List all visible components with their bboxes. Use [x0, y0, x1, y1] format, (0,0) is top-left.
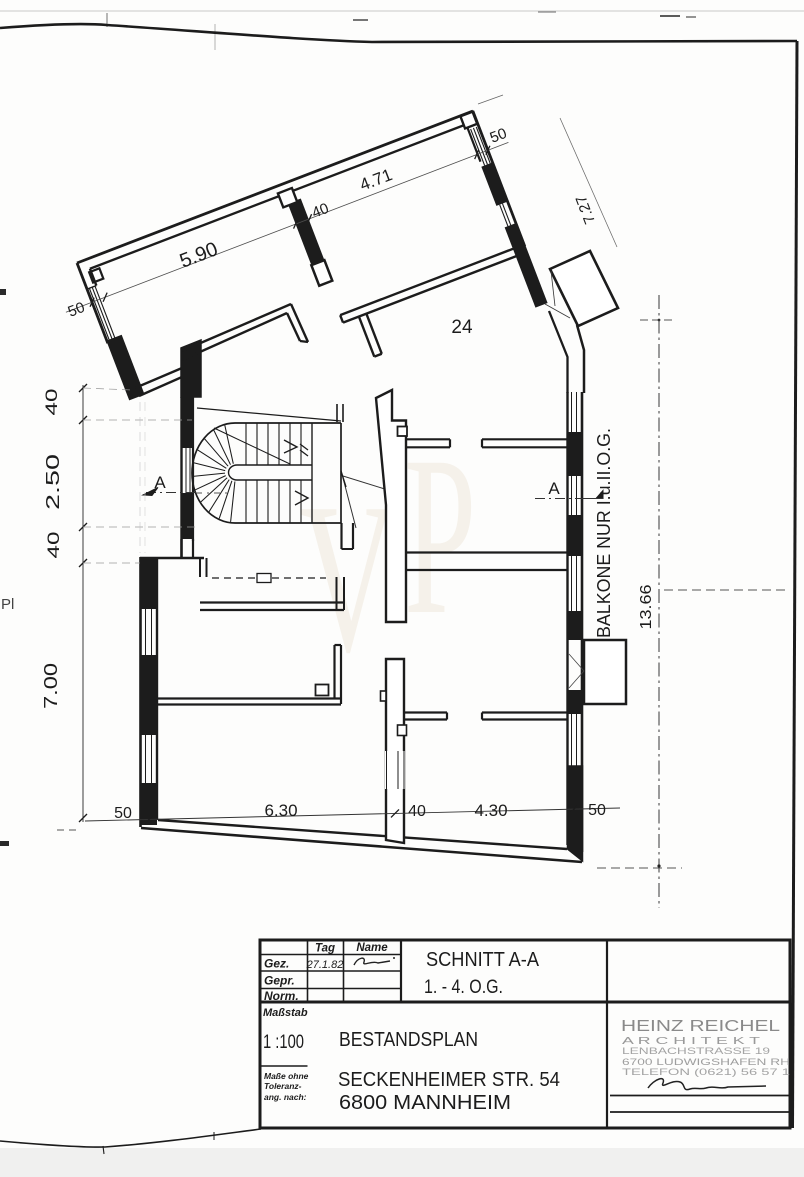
svg-text:Maßstab: Maßstab: [263, 1007, 308, 1019]
svg-text:50: 50: [588, 802, 606, 819]
svg-text:TELEFON (0621) 56 57 1: TELEFON (0621) 56 57 1: [622, 1067, 790, 1078]
svg-text:6.30: 6.30: [264, 801, 297, 820]
svg-text:1 :100: 1 :100: [263, 1032, 304, 1053]
svg-text:40: 40: [44, 532, 63, 559]
svg-text:7.00: 7.00: [41, 663, 61, 709]
svg-text:4.30: 4.30: [474, 801, 507, 820]
svg-text:Gez.: Gez.: [264, 957, 289, 971]
svg-text:6800 MANNHEIM: 6800 MANNHEIM: [339, 1092, 511, 1114]
svg-text:40: 40: [42, 389, 61, 416]
svg-text:LENBACHSTRASSE 19: LENBACHSTRASSE 19: [622, 1046, 770, 1057]
svg-text:2.50: 2.50: [43, 454, 63, 510]
svg-text:Name: Name: [356, 942, 388, 954]
svg-text:Maße ohne: Maße ohne: [264, 1071, 309, 1081]
svg-text:24: 24: [451, 317, 473, 338]
svg-text:Toleranz-: Toleranz-: [264, 1081, 302, 1091]
svg-text:1. - 4. O.G.: 1. - 4. O.G.: [424, 977, 503, 998]
svg-text:Pl: Pl: [1, 596, 14, 613]
svg-text:Gepr.: Gepr.: [264, 974, 295, 988]
svg-text:Norm.: Norm.: [264, 989, 299, 1003]
svg-text:40: 40: [408, 803, 426, 820]
svg-text:A: A: [548, 479, 560, 498]
svg-text:BESTANDSPLAN: BESTANDSPLAN: [339, 1029, 478, 1051]
svg-text:HEINZ REICHEL: HEINZ REICHEL: [621, 1018, 780, 1035]
svg-text:27.1.82: 27.1.82: [306, 959, 344, 971]
svg-text:SECKENHEIMER STR. 54: SECKENHEIMER STR. 54: [338, 1069, 560, 1091]
svg-text:SCHNITT A-A: SCHNITT A-A: [426, 949, 540, 971]
svg-text:BALKONE NUR I.u.II.O.G.: BALKONE NUR I.u.II.O.G.: [594, 428, 614, 638]
svg-text:Tag: Tag: [315, 943, 335, 955]
svg-text:13.66: 13.66: [638, 584, 655, 629]
svg-text:ang. nach:: ang. nach:: [264, 1092, 307, 1102]
svg-text:50: 50: [114, 805, 132, 822]
